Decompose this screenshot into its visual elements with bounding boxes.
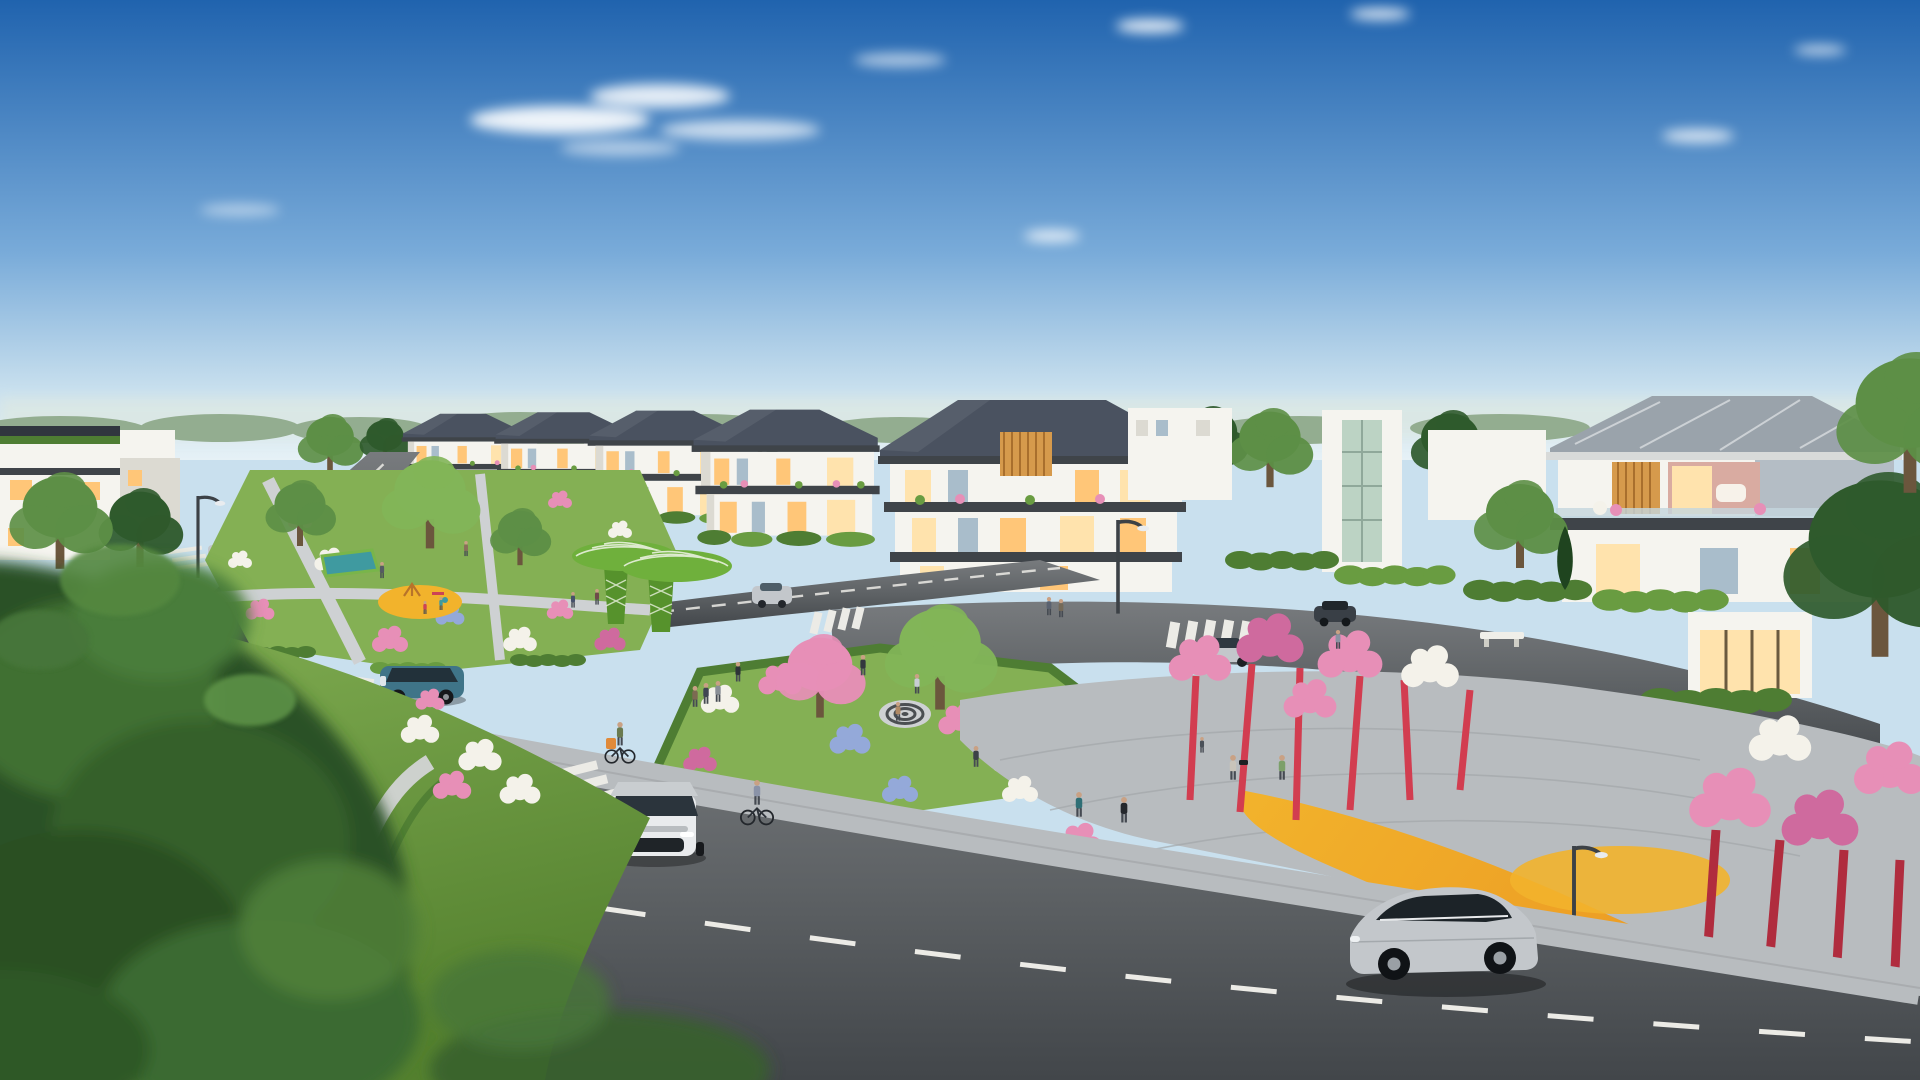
rendered-photo <box>0 0 1920 1080</box>
storefront <box>1688 612 1812 698</box>
sports-court <box>322 550 378 576</box>
row-villa-4 <box>692 410 880 547</box>
spiral-paving <box>879 700 931 728</box>
sky <box>0 0 1920 460</box>
villa-neighborhood-scene <box>0 0 1920 1080</box>
glass-stair-tower <box>1322 410 1402 572</box>
white-apartment-block <box>1128 408 1232 500</box>
